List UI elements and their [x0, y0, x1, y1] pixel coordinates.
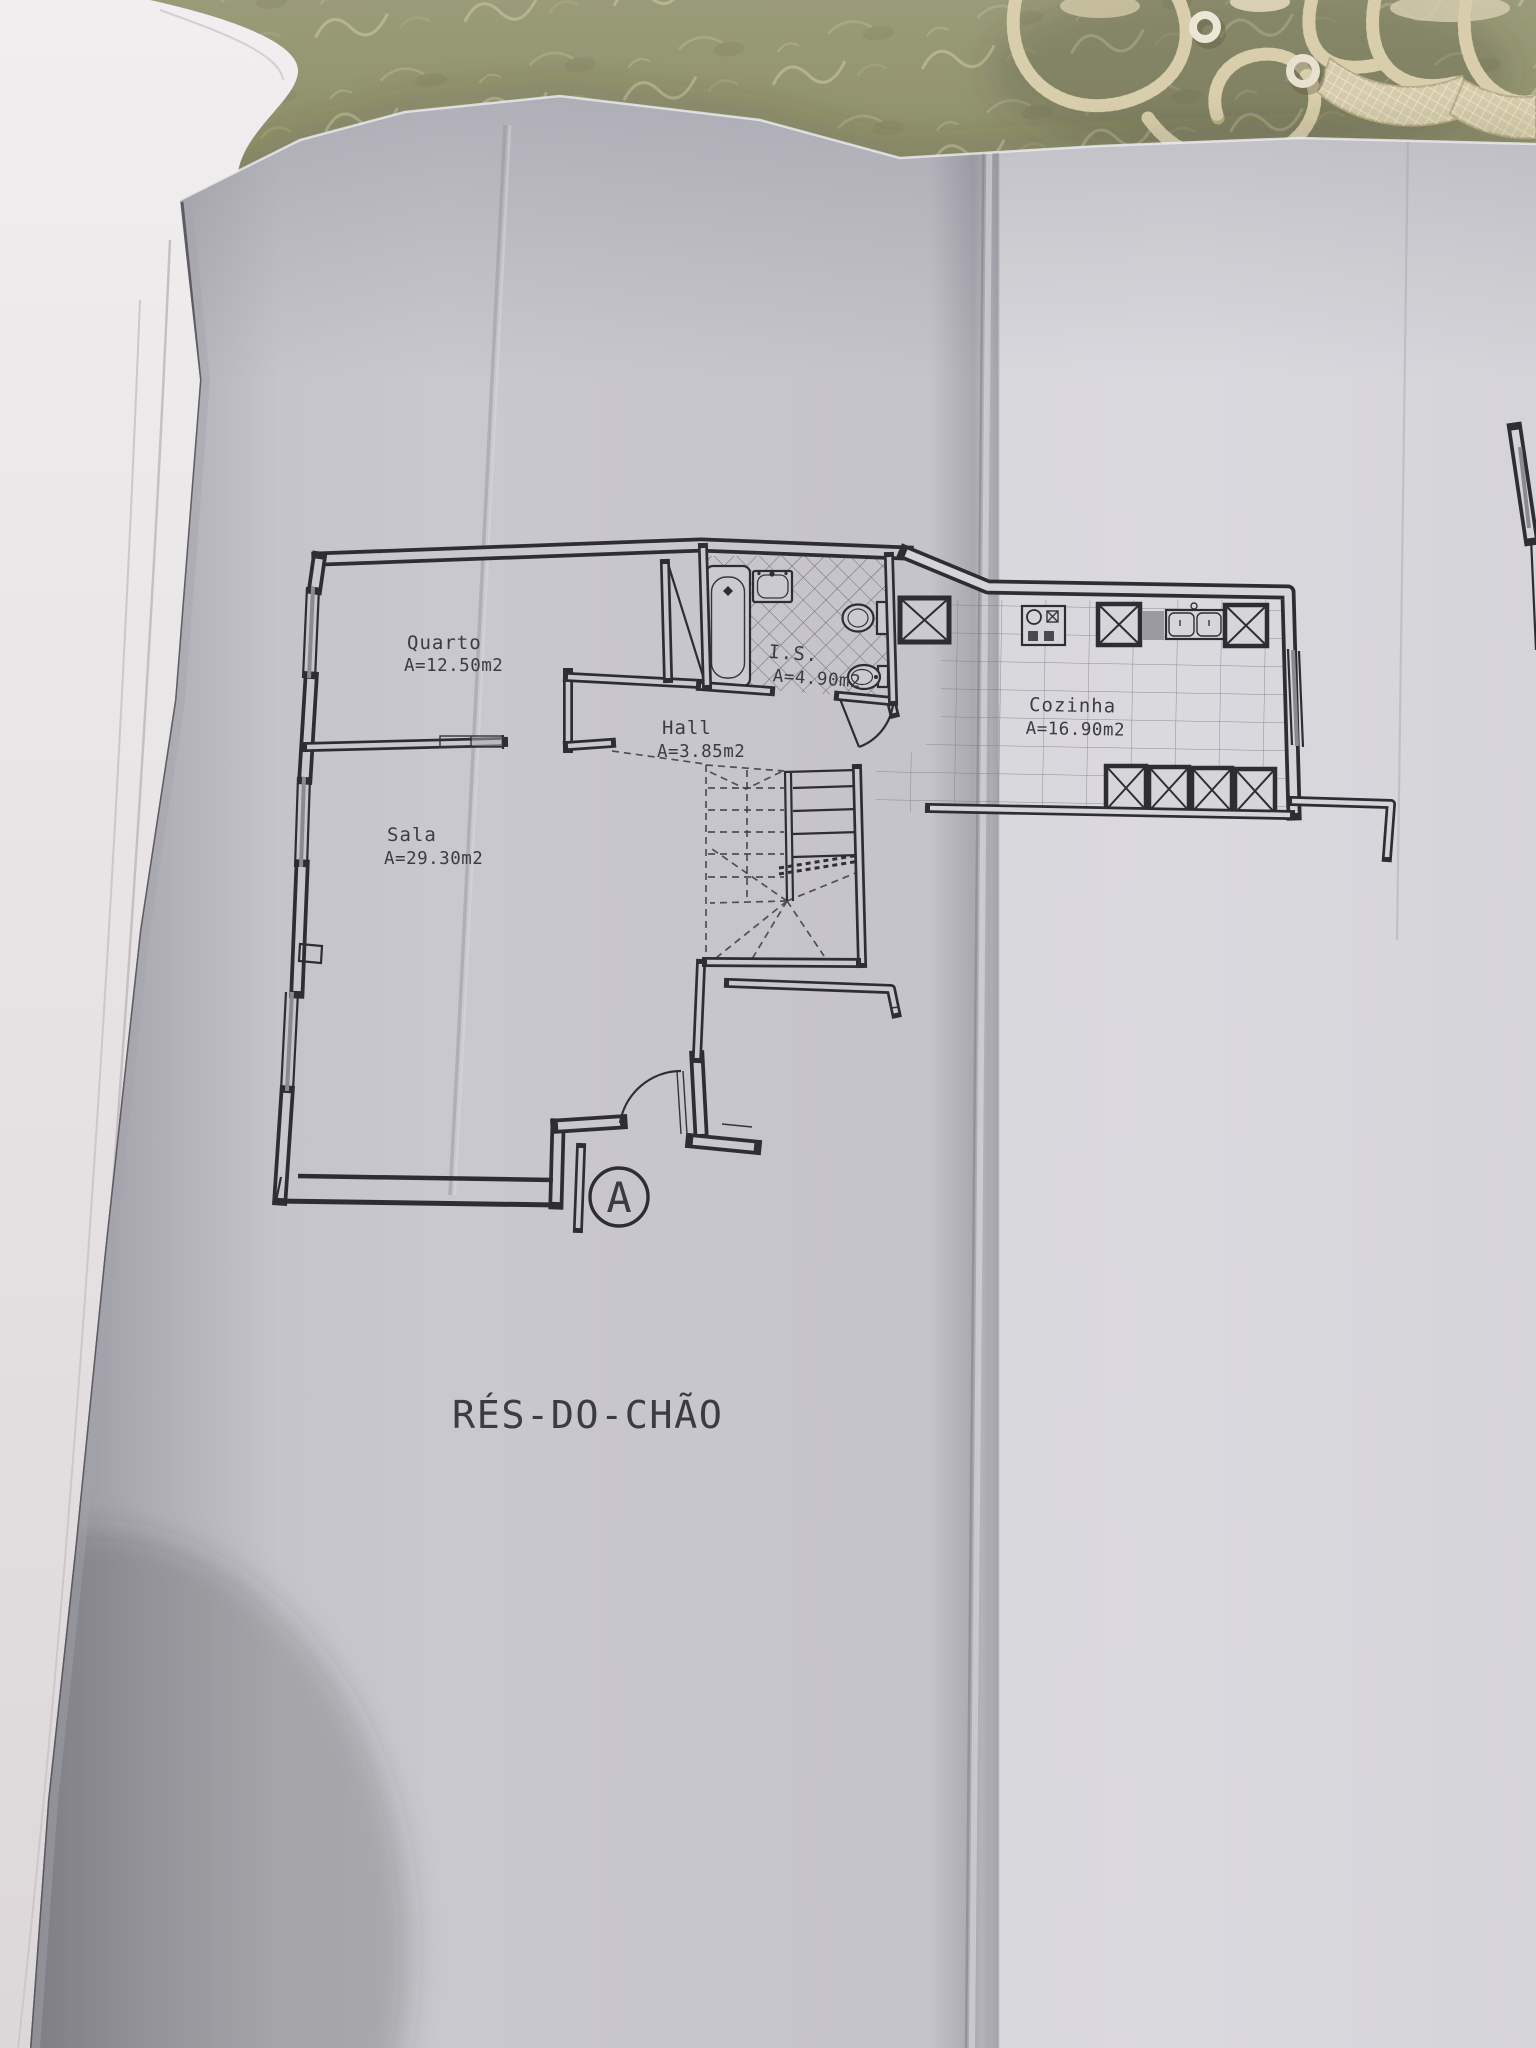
- room-label-hall: Hall: [662, 717, 712, 739]
- plan-sheet: [0, 52, 1536, 2048]
- appliance-box-row: [1106, 766, 1275, 813]
- plan-title: RÉS-DO-CHÃO: [452, 1391, 723, 1438]
- room-label-is: I.S.: [768, 641, 819, 666]
- area-label-cozinha: A=16.90m2: [1025, 719, 1125, 741]
- area-label-hall: A=3.85m2: [657, 742, 745, 762]
- section-marker-letter: A: [606, 1173, 631, 1222]
- photo-canvas: Quarto A=12.50m2 Sala A=29.30m2 Hall A=3…: [0, 0, 1536, 2048]
- washbasin-symbol: [753, 571, 792, 602]
- bathtub-symbol: [706, 566, 750, 686]
- area-label-quarto: A=12.50m2: [404, 656, 503, 676]
- appliance-box: [1098, 604, 1140, 645]
- floor-plan-photo: Quarto A=12.50m2 Sala A=29.30m2 Hall A=3…: [0, 0, 1536, 2048]
- room-label-quarto: Quarto: [407, 632, 482, 654]
- drainboard: [1142, 611, 1164, 640]
- appliance-box: [1225, 605, 1267, 646]
- toilet-symbol: [843, 602, 891, 634]
- room-label-cozinha: Cozinha: [1029, 694, 1116, 718]
- stove-symbol: [1022, 606, 1065, 645]
- appliance-box-shaft: [900, 598, 949, 642]
- area-label-sala: A=29.30m2: [384, 849, 483, 869]
- room-label-sala: Sala: [387, 824, 437, 846]
